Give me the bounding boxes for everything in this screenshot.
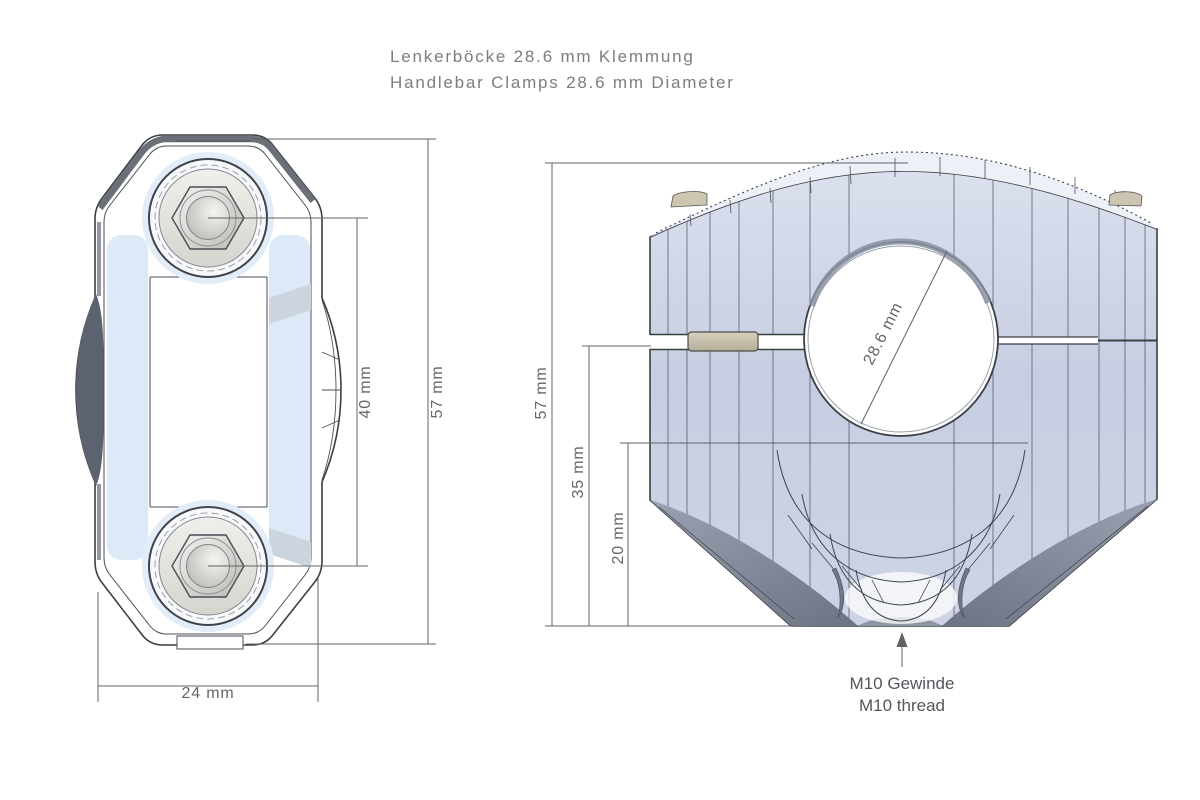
arch-highlight: [845, 572, 957, 624]
dim-label-front-height: 57 mm: [533, 367, 551, 420]
bore-hole: [804, 242, 998, 436]
dim-label-bolt-spacing: 40 mm: [357, 366, 375, 419]
front-view-part: [649, 152, 1157, 630]
drawing-canvas: Lenkerböcke 28.6 mm Klemmung Handlebar C…: [0, 0, 1200, 800]
title-line-english: Handlebar Clamps 28.6 mm Diameter: [390, 70, 735, 96]
technical-drawing: [0, 0, 1200, 800]
left-bulge-shadow: [76, 294, 104, 486]
drawing-title: Lenkerböcke 28.6 mm Klemmung Handlebar C…: [390, 44, 735, 96]
m10-arrow-head: [897, 632, 908, 647]
title-line-german: Lenkerböcke 28.6 mm Klemmung: [390, 44, 735, 70]
bottom-edge-tab: [177, 636, 243, 649]
top-view-part: [76, 135, 341, 649]
bolt-head-right: [1109, 192, 1142, 206]
dim-label-top-height: 57 mm: [429, 366, 447, 419]
left-panel: [107, 235, 148, 560]
dim-label-width: 24 mm: [182, 685, 235, 703]
right-panel: [269, 235, 310, 558]
m10-note-german: M10 Gewinde: [850, 674, 955, 694]
m10-note-english: M10 thread: [859, 696, 945, 716]
dim-label-low: 20 mm: [610, 512, 628, 565]
bolt-head-left: [671, 192, 707, 207]
dim-35-lines: [582, 346, 651, 626]
dim-label-mid: 35 mm: [570, 446, 588, 499]
washer: [688, 332, 758, 351]
